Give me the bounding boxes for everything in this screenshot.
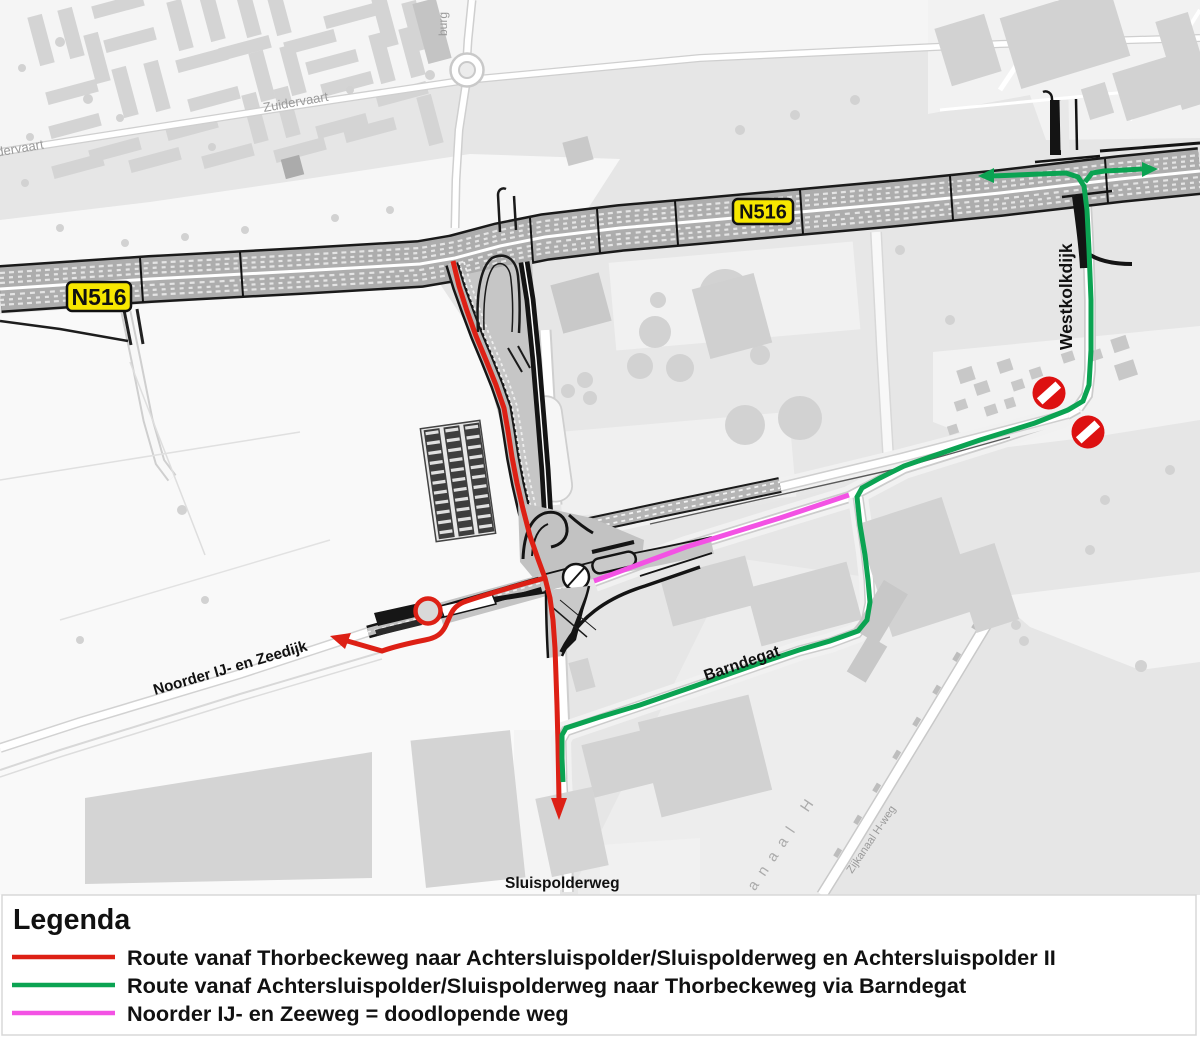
svg-text:Route vanaf Thorbeckeweg naar: Route vanaf Thorbeckeweg naar Achterslui… xyxy=(127,945,1056,970)
svg-text:Route vanaf Achtersluispolder/: Route vanaf Achtersluispolder/Sluispolde… xyxy=(127,973,966,998)
svg-text:N516: N516 xyxy=(72,284,127,310)
svg-text:Westkolkdijk: Westkolkdijk xyxy=(1056,243,1076,350)
svg-text:Sluispolderweg: Sluispolderweg xyxy=(505,875,620,892)
svg-text:Legenda: Legenda xyxy=(13,904,131,936)
svg-text:Noorder IJ- en Zeeweg = doodlo: Noorder IJ- en Zeeweg = doodlopende weg xyxy=(127,1001,569,1026)
svg-text:burg: burg xyxy=(436,12,450,36)
svg-text:N516: N516 xyxy=(739,202,787,224)
